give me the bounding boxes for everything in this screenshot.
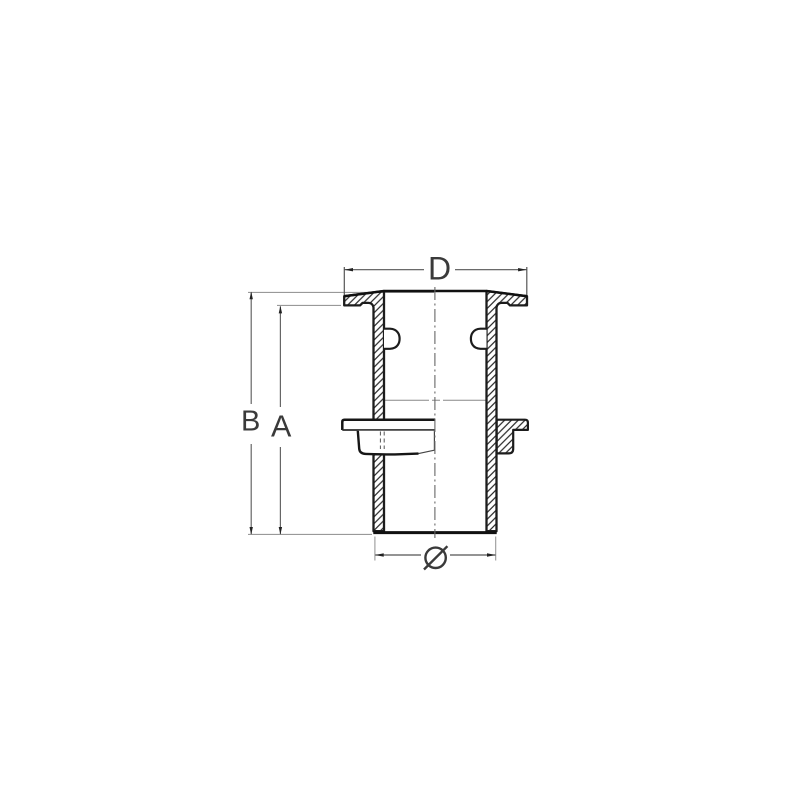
- svg-text:B: B: [241, 405, 260, 437]
- svg-text:A: A: [271, 410, 292, 444]
- svg-text:D: D: [428, 251, 451, 287]
